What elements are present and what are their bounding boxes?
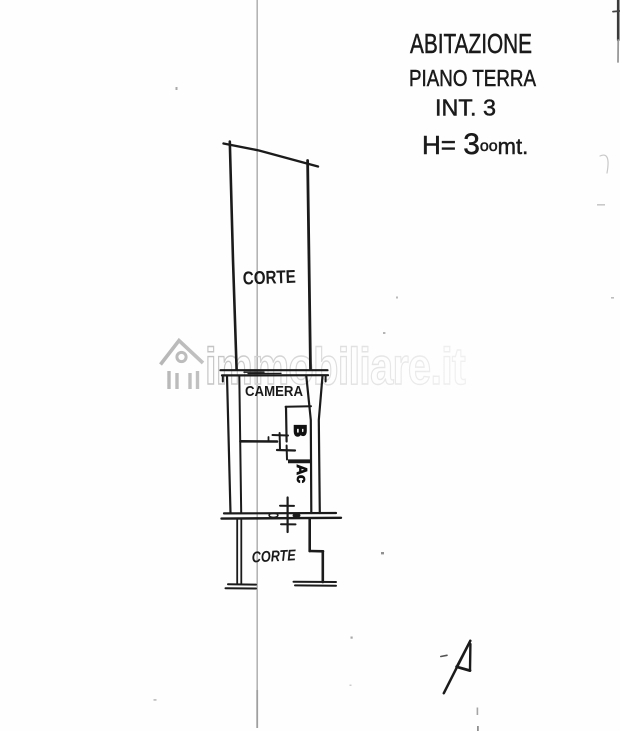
svg-text:CORTE: CORTE (251, 547, 296, 566)
svg-text:ABITAZIONE: ABITAZIONE (410, 28, 532, 59)
svg-text:H= 3oomt.: H= 3oomt. (422, 128, 528, 161)
svg-text:Ac: Ac (293, 465, 309, 484)
svg-text:PIANO TERRA: PIANO TERRA (409, 65, 537, 91)
svg-text:CORTE: CORTE (242, 266, 296, 289)
svg-text:B: B (291, 425, 310, 437)
svg-text:INT. 3: INT. 3 (435, 95, 496, 121)
svg-text:CAMERA: CAMERA (245, 383, 303, 400)
